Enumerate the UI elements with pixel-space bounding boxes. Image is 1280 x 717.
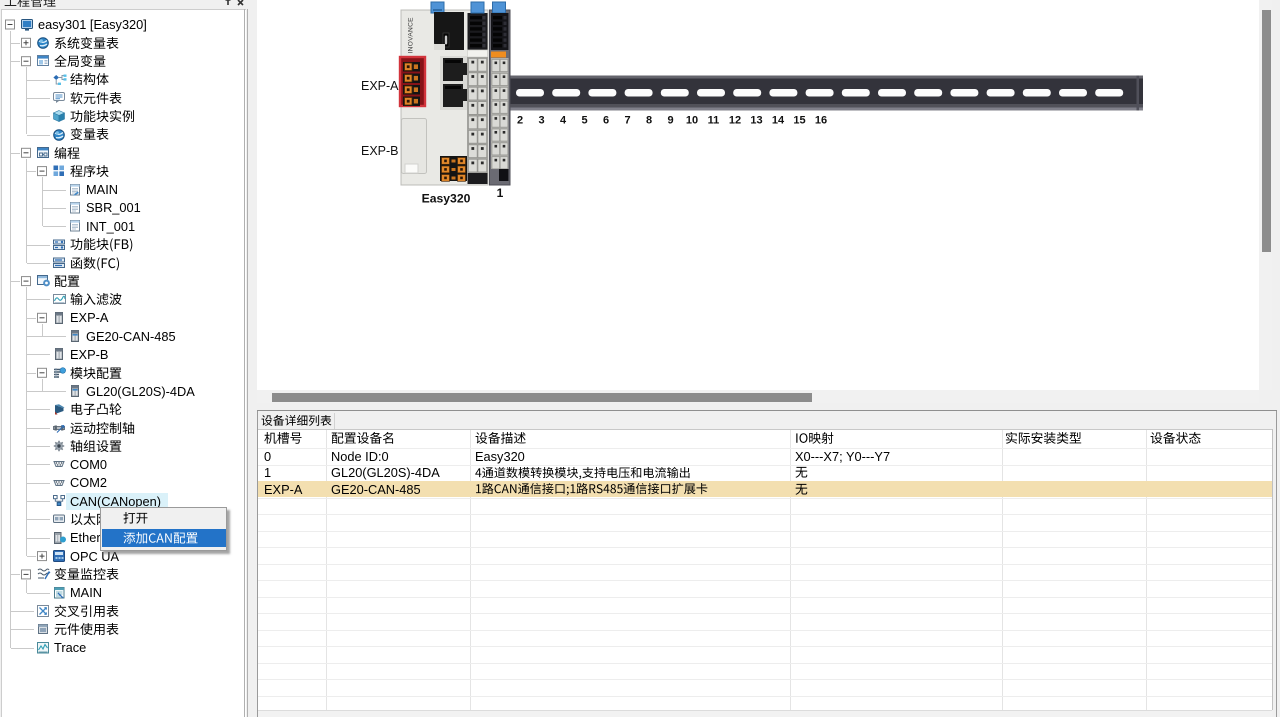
svg-text:INOVANCE: INOVANCE (408, 17, 415, 54)
svg-text:16: 16 (815, 115, 827, 127)
svg-text:1: 1 (497, 186, 504, 200)
svg-text:3: 3 (538, 115, 544, 127)
svg-text:Easy320: Easy320 (422, 192, 471, 206)
svg-text:2: 2 (517, 115, 523, 127)
svg-text:6: 6 (603, 115, 609, 127)
svg-text:7: 7 (624, 115, 630, 127)
svg-text:15: 15 (793, 115, 805, 127)
svg-text:10: 10 (686, 115, 698, 127)
svg-text:4: 4 (560, 115, 567, 127)
svg-text:8: 8 (646, 115, 652, 127)
svg-text:EXP-A: EXP-A (361, 79, 399, 93)
svg-text:11: 11 (708, 115, 720, 127)
svg-text:5: 5 (581, 115, 587, 127)
svg-text:9: 9 (667, 115, 673, 127)
svg-text:13: 13 (750, 115, 762, 127)
svg-text:14: 14 (772, 115, 785, 127)
svg-text:12: 12 (729, 115, 741, 127)
svg-text:EXP-B: EXP-B (361, 144, 399, 158)
